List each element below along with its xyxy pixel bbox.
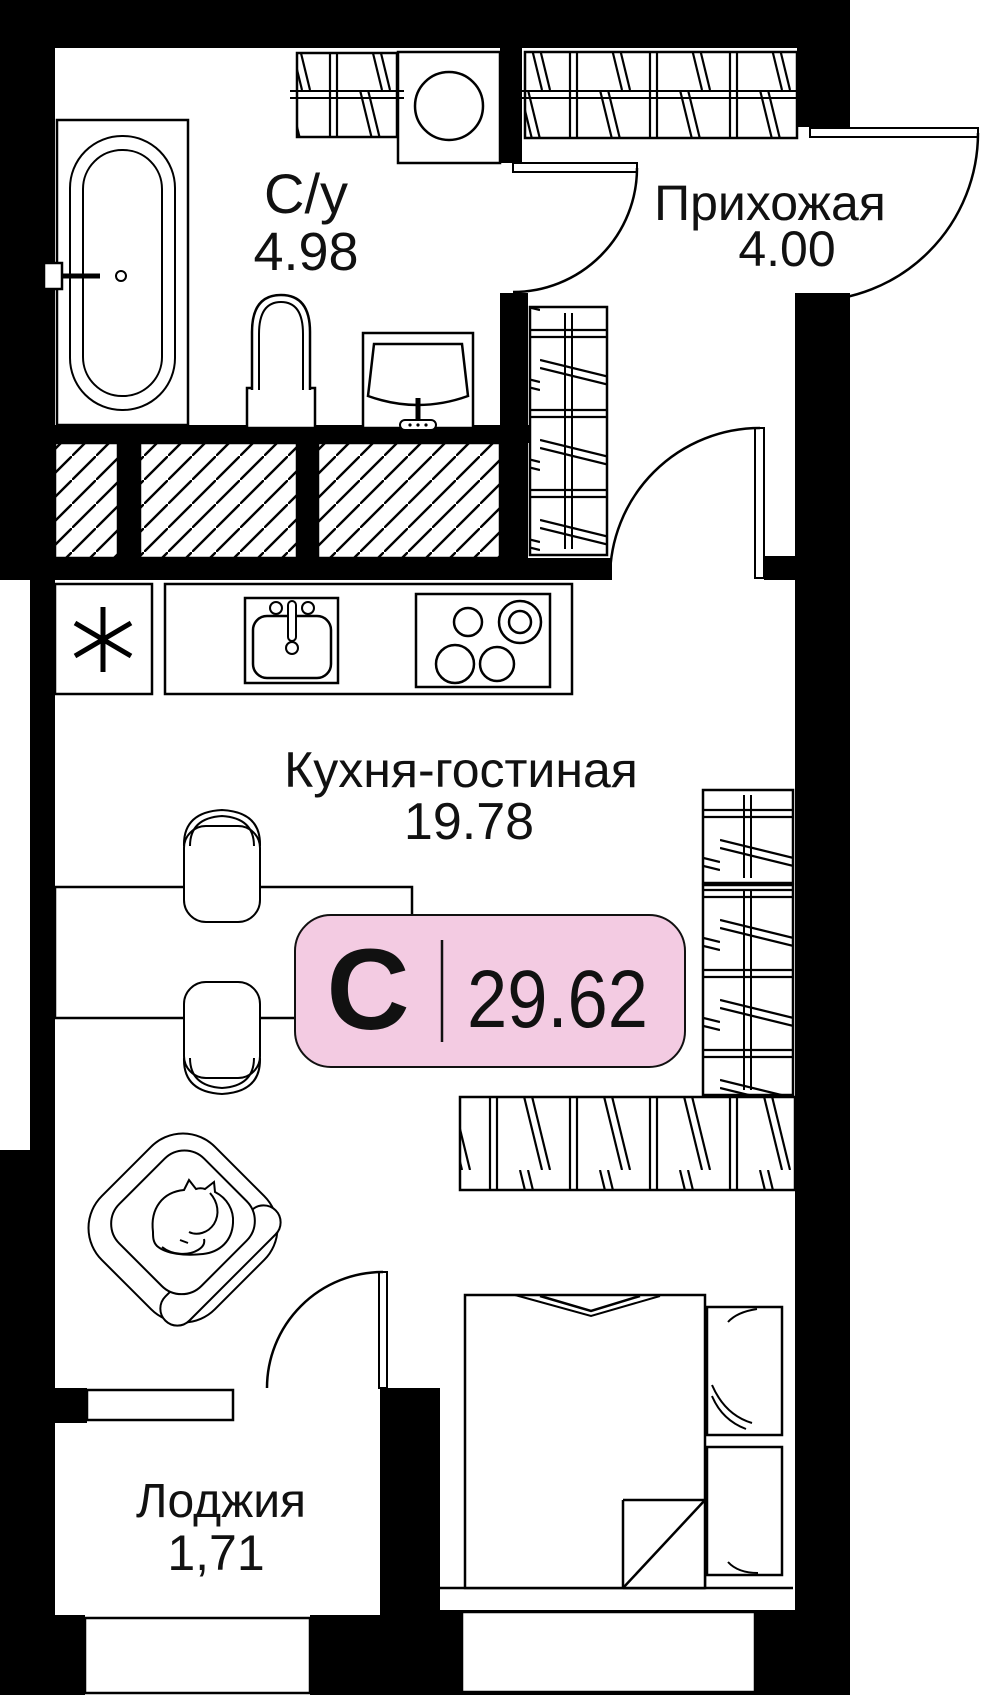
- nightstand-lower: [707, 1447, 782, 1575]
- kitchen-sink: [245, 598, 338, 683]
- armchair: [70, 1115, 296, 1341]
- room-label-bathroom: С/у: [264, 162, 348, 225]
- room-area-kitchen-living: 19.78: [404, 793, 534, 851]
- sleeping-area: [465, 1295, 782, 1588]
- wardrobe-right-upper: [703, 790, 793, 883]
- stove: [416, 594, 550, 687]
- wardrobe-right-lower: [703, 885, 793, 1095]
- wardrobe-bottom: [460, 1097, 795, 1190]
- towel-radiator: [290, 53, 404, 137]
- loggia-door: [267, 1272, 387, 1388]
- plan-badge: С 29.62: [295, 915, 685, 1067]
- badge-letter: С: [326, 926, 409, 1054]
- chair-top: [184, 810, 260, 922]
- loggia-sill-window: [87, 1390, 233, 1420]
- bath-faucet-icon: [44, 263, 62, 289]
- loggia-window: [85, 1618, 310, 1693]
- room-area-bathroom: 4.98: [253, 222, 358, 282]
- washing-machine: [398, 52, 500, 163]
- fridge-spot: [55, 584, 152, 694]
- badge-area: 29.62: [467, 954, 648, 1045]
- nightstand-upper: [707, 1307, 782, 1435]
- floor-plan: С 29.62 С/у 4.98 Прихожая 4.00 Кухня-гос…: [0, 0, 1000, 1695]
- bedroom-window: [462, 1612, 755, 1692]
- chair-bottom: [184, 982, 260, 1094]
- room-label-kitchen-living: Кухня-гостиная: [284, 742, 638, 798]
- room-area-hallway: 4.00: [738, 221, 835, 277]
- kitchen-door: [610, 428, 764, 578]
- toilet: [247, 295, 315, 428]
- bathroom-sink: [363, 333, 473, 430]
- floor-plan-svg: С 29.62 С/у 4.98 Прихожая 4.00 Кухня-гос…: [0, 0, 1000, 1695]
- blanket-fold: [623, 1500, 705, 1588]
- bathtub: [44, 120, 188, 425]
- wardrobe-top: [518, 52, 802, 138]
- bathroom-door: [513, 163, 637, 292]
- room-label-loggia: Лоджия: [136, 1475, 306, 1528]
- room-area-loggia: 1,71: [167, 1525, 264, 1581]
- kitchen: [55, 584, 572, 694]
- hall-cabinet: [530, 307, 607, 555]
